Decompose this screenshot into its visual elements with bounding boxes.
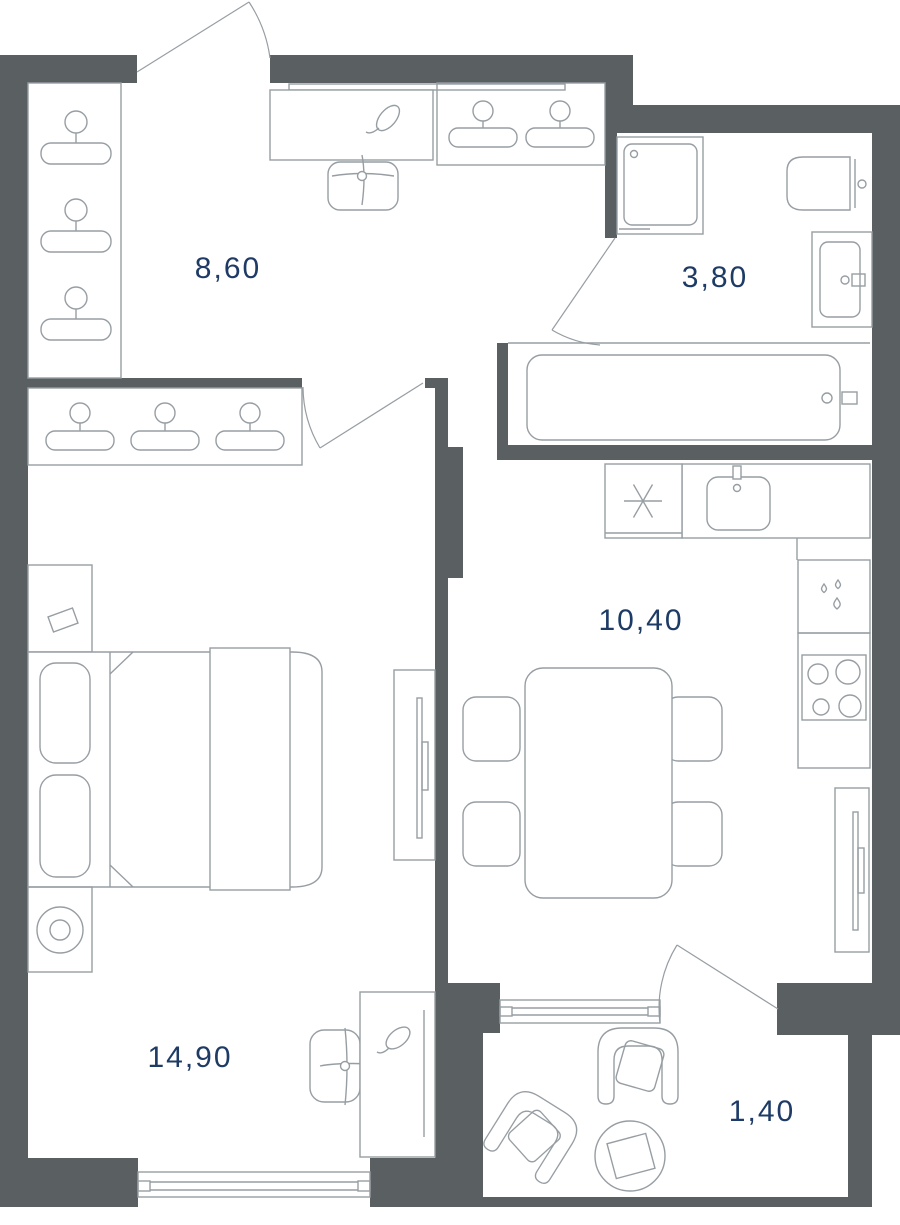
kitchen-balcony-window <box>500 1000 660 1023</box>
hanger-icon <box>449 101 517 147</box>
wall-segment <box>497 343 508 453</box>
wall-segment <box>497 445 872 460</box>
wall-segment <box>435 388 448 983</box>
kitchen-tv <box>835 788 869 952</box>
drops-icon <box>822 580 841 609</box>
stove-icon <box>802 655 866 720</box>
dining-table <box>525 668 672 898</box>
cushion <box>506 1108 562 1164</box>
dining-chair <box>665 802 722 866</box>
bedroom-door <box>303 383 423 448</box>
window-cap <box>138 1181 150 1191</box>
balcony-door <box>659 945 778 1023</box>
wall-segment <box>0 55 28 1207</box>
room-area-label: 1,40 <box>729 1095 795 1128</box>
fridge-icon <box>605 464 682 538</box>
kitchen-sink-icon <box>707 466 770 530</box>
stove-counter <box>798 633 870 768</box>
hanger-icon <box>131 403 199 450</box>
room-area-label: 14,90 <box>147 1041 232 1074</box>
armchair-icon <box>481 1084 584 1186</box>
wall-segment <box>848 1035 872 1207</box>
dining-chair <box>665 697 722 761</box>
bedroom-closet <box>28 388 302 465</box>
wall-segment <box>0 55 137 83</box>
hallway-wardrobe <box>28 83 121 378</box>
wall-segment <box>777 983 872 1035</box>
bedroom-tv <box>394 670 435 860</box>
desk <box>270 90 433 160</box>
room-area-label: 3,80 <box>682 261 748 294</box>
hanger-icon <box>41 287 111 340</box>
door-leaf <box>320 383 423 448</box>
bedroom-window <box>138 1172 370 1197</box>
wall-segment <box>605 133 617 238</box>
shelf <box>289 84 565 90</box>
door-arc-icon <box>249 2 270 58</box>
wall-segment <box>0 1158 138 1207</box>
wall-segment <box>448 447 463 578</box>
floor-plan: 8,60 3,80 10,40 14,90 1,40 <box>0 0 900 1225</box>
window-icon <box>138 1172 370 1197</box>
hallway-desk <box>270 84 565 210</box>
wall-segment <box>483 1197 860 1207</box>
door-arc-icon <box>303 387 320 448</box>
wall-segment <box>435 1033 483 1207</box>
closet-box <box>437 83 605 165</box>
swivel-chair-icon <box>328 155 398 210</box>
wall-segment <box>633 105 900 133</box>
dining-set <box>463 668 722 898</box>
bedroom-desk <box>310 992 435 1157</box>
bed-icon <box>28 648 322 890</box>
hanger-icon <box>526 101 594 147</box>
vanity-mirror <box>48 608 78 632</box>
dishwasher <box>798 560 870 633</box>
hallway-closet <box>437 83 605 165</box>
armchair-icon <box>598 1028 678 1104</box>
room-area-label: 8,60 <box>195 252 261 285</box>
hanger-icon <box>41 199 111 252</box>
wall-segment <box>605 55 633 133</box>
tv-cabinet <box>394 670 435 860</box>
bathroom-sink-icon <box>812 232 872 327</box>
washer-icon <box>617 137 703 234</box>
wall-segment <box>28 378 302 388</box>
round-table-icon <box>595 1121 665 1191</box>
door-leaf <box>677 945 778 1009</box>
hanger-icon <box>46 403 114 450</box>
toilet-icon <box>787 157 866 210</box>
kitchen-counter <box>682 464 870 560</box>
door-leaf <box>137 2 249 72</box>
hanger-icon <box>41 111 111 164</box>
window-cap <box>358 1181 370 1191</box>
hanger-icon <box>216 403 284 450</box>
dining-chair <box>463 802 520 866</box>
door-arc-icon <box>659 945 677 1023</box>
room-area-label: 10,40 <box>598 604 683 637</box>
bathroom-door <box>552 238 615 345</box>
walls <box>0 55 900 1207</box>
window-icon <box>500 1000 660 1023</box>
window-cap <box>648 1007 660 1016</box>
wall-segment <box>425 378 448 388</box>
window-cap <box>500 1007 512 1016</box>
duvet <box>210 648 290 890</box>
vanity-table <box>28 565 92 652</box>
floor-plan-svg: 8,60 3,80 10,40 14,90 1,40 <box>0 0 900 1225</box>
wall-segment <box>872 105 900 1035</box>
dining-chair <box>463 697 520 761</box>
bedside-speaker <box>28 887 92 972</box>
wall-segment <box>270 55 633 83</box>
wall-segment <box>435 983 500 1033</box>
entry-door <box>137 2 270 72</box>
door-leaf <box>552 238 615 330</box>
wall-segment <box>370 1158 435 1207</box>
bathtub-icon <box>508 343 870 440</box>
